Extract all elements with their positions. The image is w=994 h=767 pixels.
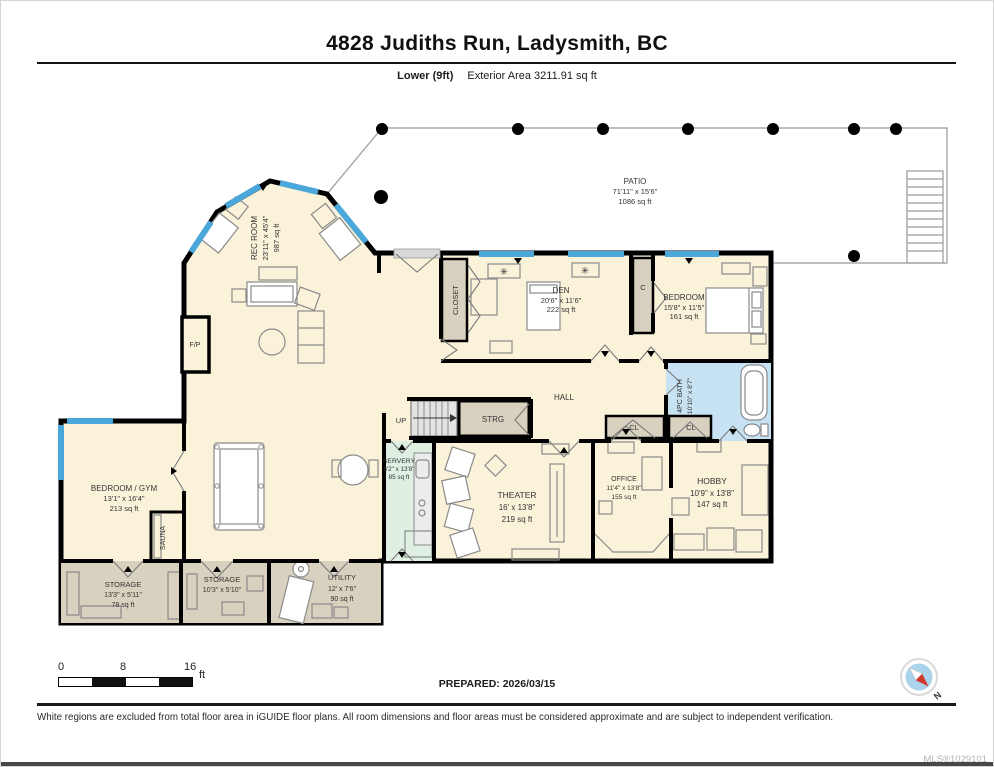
svg-text:161 sq ft: 161 sq ft bbox=[670, 312, 700, 321]
svg-text:213 sq ft: 213 sq ft bbox=[110, 504, 140, 513]
svg-text:10'3" x 5'10": 10'3" x 5'10" bbox=[203, 587, 242, 594]
sauna-room bbox=[151, 512, 184, 561]
compass-north-label: N bbox=[932, 690, 943, 702]
footer-disclaimer: White regions are excluded from total fl… bbox=[37, 712, 956, 723]
svg-text:DEN: DEN bbox=[553, 286, 570, 295]
label-cl2: CL bbox=[686, 423, 696, 432]
svg-text:20'6" x 11'6": 20'6" x 11'6" bbox=[541, 296, 582, 305]
svg-text:90 sq ft: 90 sq ft bbox=[331, 596, 354, 603]
svg-text:13'3" x 5'11": 13'3" x 5'11" bbox=[104, 592, 142, 599]
svg-text:23'11" x 45'4": 23'11" x 45'4" bbox=[261, 215, 270, 260]
svg-text:10'10" x 8'7": 10'10" x 8'7" bbox=[687, 377, 694, 414]
svg-text:85 sq ft: 85 sq ft bbox=[389, 474, 410, 481]
svg-text:THEATER: THEATER bbox=[497, 490, 536, 500]
room-label-patio: PATIO 71'11" x 15'6" 1086 sq ft bbox=[613, 177, 658, 206]
svg-text:11'4" x 13'8": 11'4" x 13'8" bbox=[606, 485, 642, 492]
ceiling-light-icon: ✳ bbox=[500, 267, 508, 278]
svg-text:987 sq ft: 987 sq ft bbox=[272, 223, 281, 253]
patio-stairs bbox=[907, 171, 943, 263]
svg-text:UTILITY: UTILITY bbox=[328, 573, 356, 582]
svg-text:13'1" x 16'4": 13'1" x 16'4" bbox=[103, 494, 144, 503]
svg-text:78 sq ft: 78 sq ft bbox=[112, 602, 135, 609]
svg-text:BEDROOM: BEDROOM bbox=[663, 293, 705, 302]
label-closet: CLOSET bbox=[451, 285, 460, 315]
stairs-up bbox=[411, 401, 457, 436]
prepared-date: PREPARED: 2026/03/15 bbox=[1, 678, 993, 690]
svg-text:REC ROOM: REC ROOM bbox=[250, 216, 259, 260]
scale-tick-16: 16 bbox=[184, 661, 196, 673]
closet-c bbox=[633, 258, 653, 333]
svg-text:6'2" x 13'8": 6'2" x 13'8" bbox=[383, 466, 414, 473]
label-cl1: CL bbox=[629, 423, 639, 432]
svg-text:HOBBY: HOBBY bbox=[697, 476, 727, 486]
room-label-utility: UTILITY 12' x 7'6" 90 sq ft bbox=[328, 573, 357, 603]
label-sauna: SAUNA bbox=[160, 526, 167, 550]
label-strg: STRG bbox=[482, 415, 504, 424]
scale-tick-0: 0 bbox=[58, 661, 64, 673]
page-bottom-edge bbox=[1, 762, 993, 766]
svg-text:155 sq ft: 155 sq ft bbox=[612, 494, 637, 501]
svg-text:16' x 13'8": 16' x 13'8" bbox=[499, 503, 536, 512]
svg-text:71'11" x 15'6": 71'11" x 15'6" bbox=[613, 187, 658, 196]
svg-text:12' x 7'6": 12' x 7'6" bbox=[328, 586, 357, 593]
svg-text:15'8" x 11'5": 15'8" x 11'5" bbox=[664, 303, 705, 312]
svg-text:10'9" x 13'8": 10'9" x 13'8" bbox=[690, 489, 734, 498]
svg-text:PATIO: PATIO bbox=[624, 177, 647, 186]
svg-text:SERVERY: SERVERY bbox=[383, 458, 416, 465]
svg-text:219 sq ft: 219 sq ft bbox=[502, 515, 533, 524]
svg-text:1086 sq ft: 1086 sq ft bbox=[619, 197, 653, 206]
svg-text:4PC BATH: 4PC BATH bbox=[677, 379, 684, 413]
svg-text:STORAGE: STORAGE bbox=[105, 580, 142, 589]
footer-divider bbox=[37, 703, 956, 706]
label-up: UP bbox=[396, 416, 406, 425]
scale-tick-8: 8 bbox=[120, 661, 126, 673]
label-c: C bbox=[640, 283, 646, 292]
ceiling-light-icon: ✳ bbox=[581, 266, 589, 277]
svg-text:147 sq ft: 147 sq ft bbox=[697, 500, 728, 509]
label-fp: F/P bbox=[190, 342, 201, 349]
floorplan-drawing: PATIO 71'11" x 15'6" 1086 sq ft REC ROOM… bbox=[1, 1, 994, 767]
svg-text:STORAGE: STORAGE bbox=[204, 575, 241, 584]
compass-icon: N bbox=[893, 652, 949, 708]
svg-text:OFFICE: OFFICE bbox=[611, 476, 637, 483]
svg-text:BEDROOM / GYM: BEDROOM / GYM bbox=[91, 484, 158, 493]
label-hall: HALL bbox=[554, 393, 575, 402]
floorplan-page: 4828 Judiths Run, Ladysmith, BC Lower (9… bbox=[0, 0, 994, 767]
room-label-theater: THEATER 16' x 13'8" 219 sq ft bbox=[497, 490, 536, 524]
svg-text:222 sq ft: 222 sq ft bbox=[547, 305, 577, 314]
